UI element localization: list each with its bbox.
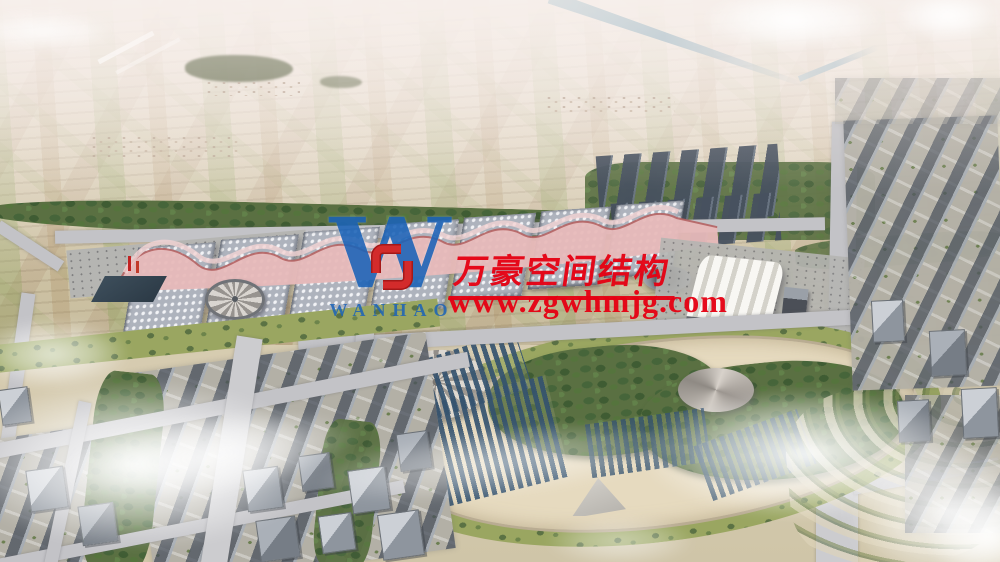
building [929, 329, 967, 377]
village-cluster-3 [90, 135, 240, 159]
round-pavilion [205, 279, 265, 320]
cloud [700, 0, 885, 50]
logo-wordmark: WANHAO [324, 300, 460, 321]
flag-pole [128, 256, 131, 271]
cloud [0, 318, 130, 390]
building [318, 512, 357, 554]
building [871, 299, 905, 343]
forest-patch-2 [320, 76, 362, 88]
watermark-logo: W WANHAO [330, 222, 454, 324]
aerial-render: W WANHAO 万豪空间结构 www.zgwhmjg.com [0, 0, 1000, 562]
watermark-url: www.zgwhmjg.com [448, 283, 728, 320]
forest-patch [185, 55, 293, 82]
city-block-east [843, 115, 1000, 390]
village-cluster-2 [545, 95, 675, 115]
cloud [545, 515, 695, 562]
cloud [0, 12, 115, 50]
distant-town-northeast [835, 78, 1000, 124]
cloud [895, 0, 1000, 40]
cloud [925, 488, 1000, 562]
village-cluster [205, 80, 300, 96]
flag-pole-2 [136, 261, 139, 273]
building [377, 509, 425, 560]
logo-emblem-icon [371, 244, 413, 290]
